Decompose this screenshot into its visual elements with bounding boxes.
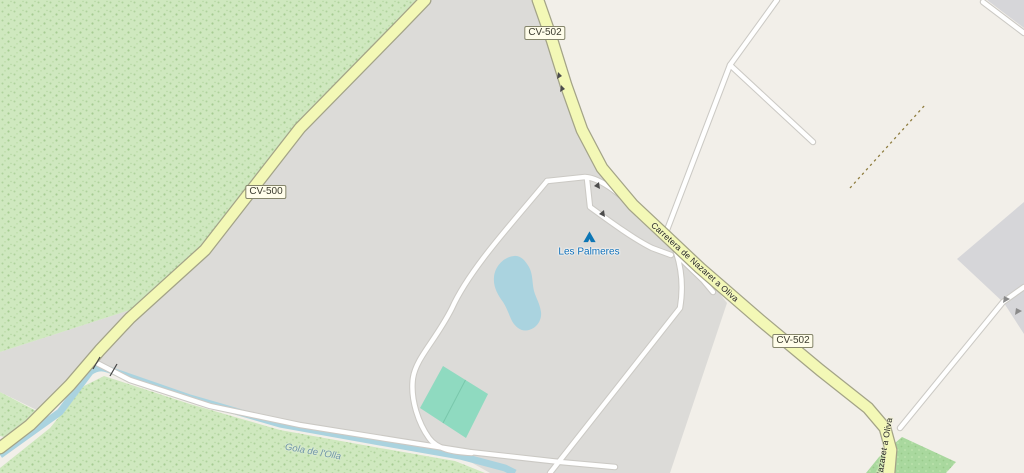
tent-icon bbox=[583, 231, 596, 243]
map-canvas[interactable]: CV-502 CV-500 CV-502 Carretera de Nazare… bbox=[0, 0, 1024, 473]
road-shield-cv500: CV-500 bbox=[245, 185, 286, 199]
map-graphics bbox=[0, 0, 1024, 473]
campsite-label: Les Palmeres bbox=[558, 247, 619, 258]
road-shield-cv502-north: CV-502 bbox=[524, 26, 565, 40]
road-shield-cv502-south: CV-502 bbox=[772, 334, 813, 348]
